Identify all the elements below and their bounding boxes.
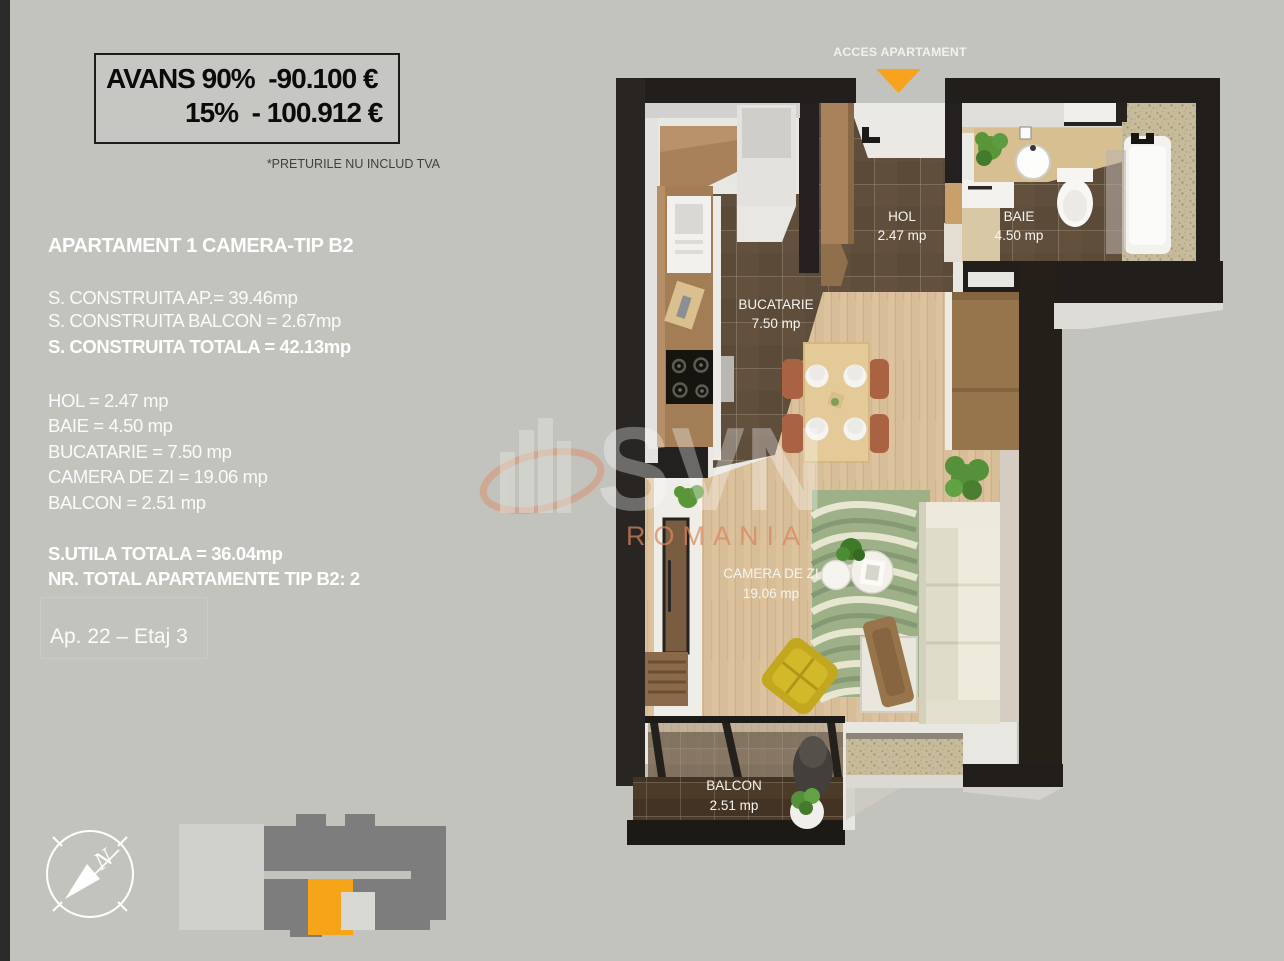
svg-text:BUCATARIE: BUCATARIE [738, 297, 813, 312]
svg-text:SVN: SVN [597, 403, 825, 536]
svg-text:HOL: HOL [888, 209, 916, 224]
svg-text:ROMANIA: ROMANIA [626, 521, 808, 551]
svg-text:BALCON: BALCON [706, 778, 762, 793]
svg-text:2.51 mp: 2.51 mp [710, 798, 759, 813]
svg-text:BAIE: BAIE [1004, 209, 1035, 224]
svg-text:4.50 mp: 4.50 mp [995, 228, 1044, 243]
svg-text:7.50 mp: 7.50 mp [752, 316, 801, 331]
svg-text:19.06 mp: 19.06 mp [743, 586, 799, 601]
svg-text:2.47 mp: 2.47 mp [878, 228, 927, 243]
svg-text:CAMERA DE ZI: CAMERA DE ZI [723, 566, 818, 581]
